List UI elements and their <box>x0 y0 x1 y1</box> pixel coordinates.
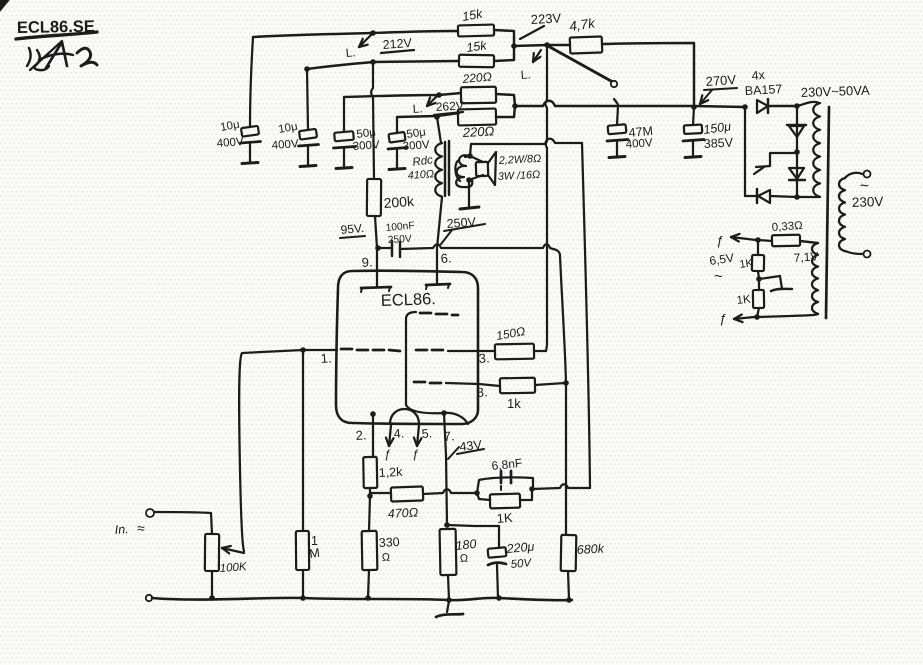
svg-text:2.: 2. <box>355 427 367 443</box>
svg-text:2,2W/8Ω: 2,2W/8Ω <box>498 153 542 167</box>
svg-text:230V~50VA: 230V~50VA <box>801 83 871 100</box>
svg-text:M: M <box>308 546 320 561</box>
svg-text:BA157: BA157 <box>744 82 782 98</box>
svg-text:9.: 9. <box>361 254 373 270</box>
svg-text:680k: 680k <box>576 542 605 557</box>
svg-text:50V: 50V <box>510 557 533 571</box>
svg-text:~: ~ <box>714 268 723 285</box>
svg-text:L.: L. <box>345 45 356 60</box>
svg-text:410Ω: 410Ω <box>407 168 434 182</box>
svg-text:400V: 400V <box>625 137 653 151</box>
svg-text:ƒ: ƒ <box>716 233 723 248</box>
svg-text:1K: 1K <box>736 294 752 307</box>
svg-text:1K: 1K <box>496 510 513 526</box>
svg-text:223V: 223V <box>530 10 561 27</box>
svg-text:Ω: Ω <box>460 553 469 565</box>
svg-text:ECL86.: ECL86. <box>381 290 437 310</box>
svg-text:8.: 8. <box>476 384 488 400</box>
svg-text:100K: 100K <box>219 561 248 575</box>
svg-text:15k: 15k <box>465 38 488 55</box>
svg-text:3W /16Ω: 3W /16Ω <box>498 169 541 183</box>
svg-text:L.: L. <box>520 67 531 82</box>
svg-text:385V: 385V <box>703 135 734 151</box>
svg-text:270V: 270V <box>705 72 737 89</box>
svg-text:400V: 400V <box>216 136 244 150</box>
svg-text:ƒ: ƒ <box>384 447 391 461</box>
svg-text:1.: 1. <box>320 350 332 366</box>
svg-text:3.: 3. <box>478 350 490 366</box>
svg-text:180: 180 <box>455 537 477 553</box>
svg-text:95V.: 95V. <box>340 221 365 237</box>
svg-text:220Ω: 220Ω <box>461 70 492 87</box>
svg-text:7.: 7. <box>443 428 455 444</box>
svg-text:470Ω: 470Ω <box>387 505 419 521</box>
svg-text:1,2k: 1,2k <box>378 465 403 480</box>
svg-text:300V: 300V <box>352 139 380 153</box>
svg-text:220μ: 220μ <box>505 540 535 556</box>
svg-text:220Ω: 220Ω <box>461 123 494 140</box>
svg-text:1k: 1k <box>507 396 521 411</box>
svg-text:≈: ≈ <box>137 520 145 536</box>
svg-text:In.: In. <box>114 522 129 537</box>
svg-text:5.: 5. <box>421 426 432 441</box>
svg-text:0,33Ω: 0,33Ω <box>771 220 803 234</box>
svg-text:300V: 300V <box>402 139 430 153</box>
svg-text:4x: 4x <box>751 68 766 83</box>
svg-text:230V: 230V <box>852 194 884 210</box>
svg-text:6.: 6. <box>440 250 452 266</box>
svg-text:L.: L. <box>412 101 423 116</box>
svg-text:ƒ: ƒ <box>719 311 726 326</box>
svg-text:Ω: Ω <box>382 552 391 564</box>
svg-text:~: ~ <box>859 178 869 195</box>
svg-text:400V: 400V <box>271 138 299 152</box>
svg-text:250V: 250V <box>388 234 413 246</box>
svg-text:7,1V: 7,1V <box>793 249 819 265</box>
svg-text:200k: 200k <box>383 193 415 211</box>
svg-text:4.: 4. <box>393 426 404 441</box>
svg-text:ƒ: ƒ <box>412 447 419 461</box>
svg-text:330: 330 <box>378 535 400 550</box>
